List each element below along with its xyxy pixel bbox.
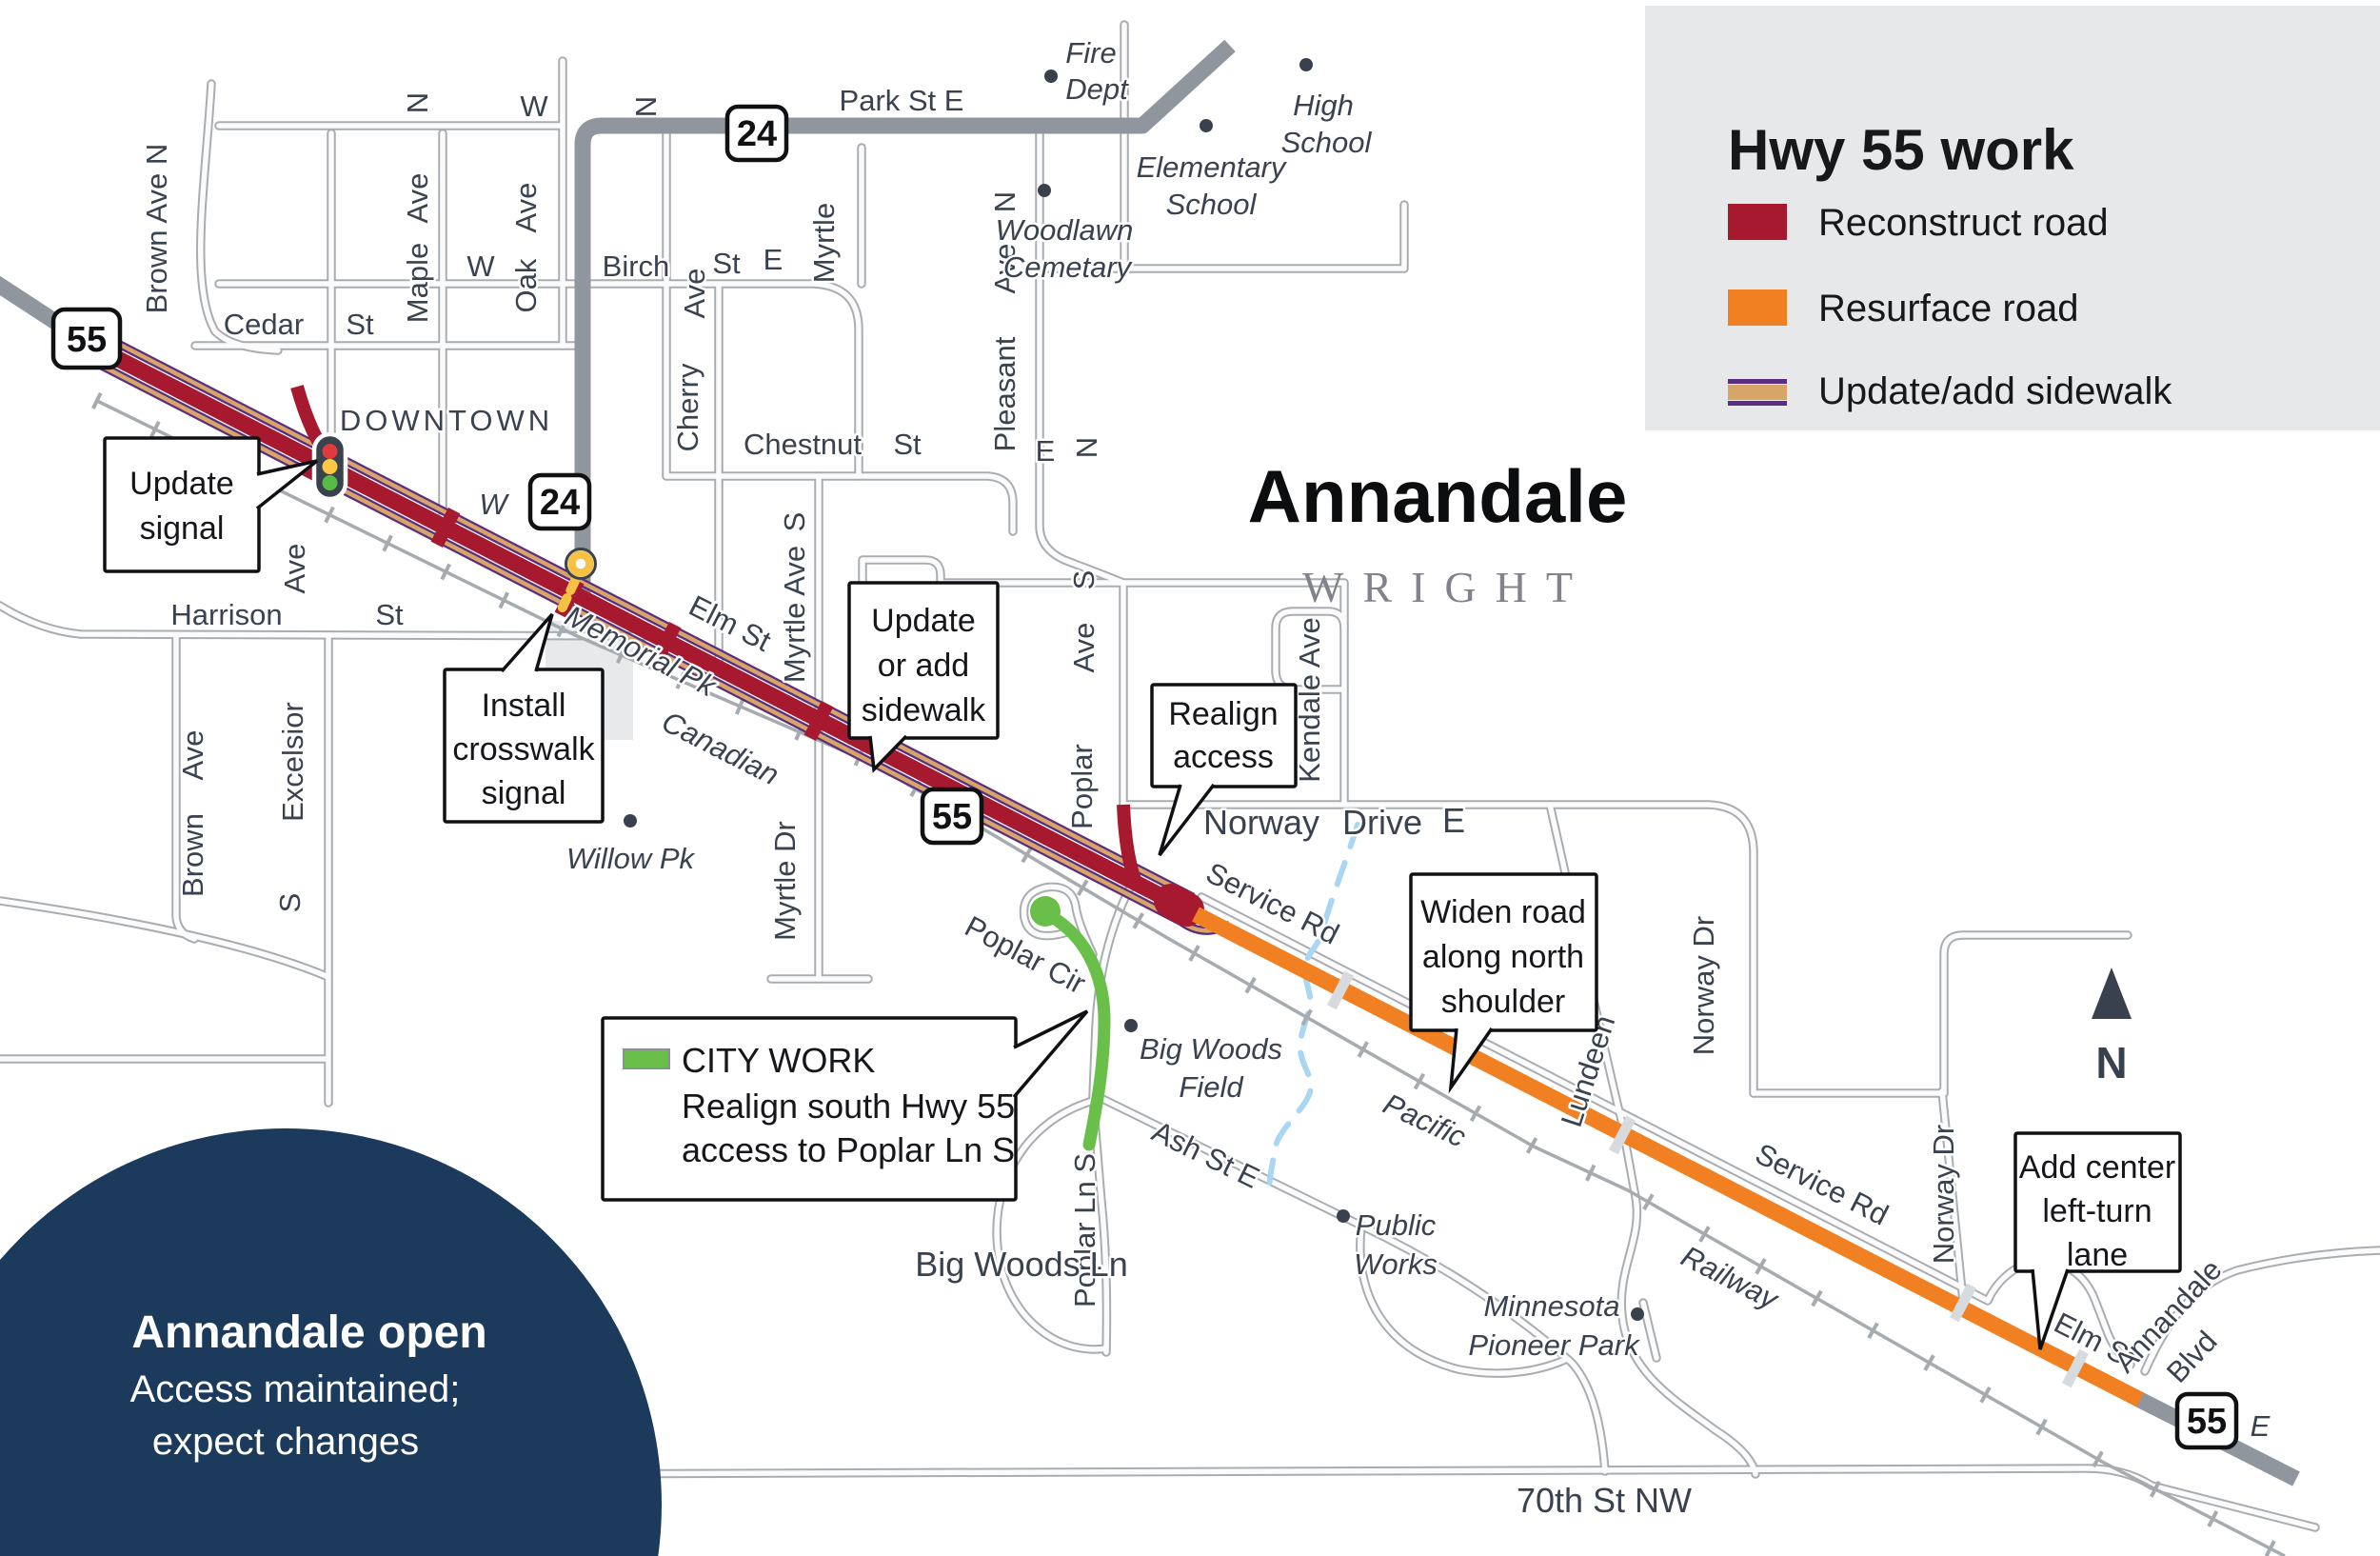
shield-24-mid-num: 24 xyxy=(540,483,580,523)
shield-55-nw-num: 55 xyxy=(67,320,107,360)
notice-title: Annandale open xyxy=(131,1307,486,1358)
mn-pioneer-dot xyxy=(1631,1307,1644,1321)
street-label-poplar: Poplar xyxy=(1065,744,1099,829)
poi-elementary: Elementary xyxy=(1137,150,1288,184)
fire-dept-dot xyxy=(1044,70,1058,83)
street-label-cherry-ave: Ave xyxy=(678,269,711,319)
callout-city-work-pointer xyxy=(1014,1011,1087,1097)
callout-sidewalk-line3: sidewalk xyxy=(862,692,986,728)
street-label-poplar-ln-s: Poplar Ln S xyxy=(1068,1153,1101,1307)
elementary-school-dot xyxy=(1200,119,1213,132)
legend: Hwy 55 work Reconstruct road Resurface r… xyxy=(1645,6,2380,430)
signal-yellow-light xyxy=(323,459,338,474)
shield-55-se: 55 xyxy=(2177,1394,2236,1447)
street-label-chestnut-e: E xyxy=(1036,434,1056,468)
poi-minnesota: Minnesota xyxy=(1483,1289,1619,1323)
street-label-pleasant: Pleasant xyxy=(988,336,1021,451)
hwy-24-road xyxy=(583,46,1230,598)
street-label-70th-st-nw: 70th St NW xyxy=(1517,1481,1692,1520)
shield-55-mid-num: 55 xyxy=(932,797,972,837)
notice-circle: Annandale open Access maintained; expect… xyxy=(0,1128,662,1556)
callout-left-turn-line1: Add center xyxy=(2019,1149,2175,1186)
callout-update-signal-pointer xyxy=(257,461,317,509)
street-label-excelsior-ave: Ave xyxy=(278,544,311,594)
callout-crosswalk-pointer xyxy=(502,614,552,671)
street-label-ash-st-e: Ash St E xyxy=(1147,1114,1265,1194)
shield-55-mid: 55 xyxy=(922,789,982,843)
callout-update-signal-line2: signal xyxy=(140,510,225,547)
callout-sidewalk-line2: or add xyxy=(878,648,969,684)
street-label-myrtle: Myrtle xyxy=(807,203,841,283)
street-label-kendale-ave: Kendale Ave xyxy=(1293,617,1326,783)
big-woods-field-dot xyxy=(1124,1019,1138,1032)
street-label-excelsior: Excelsior xyxy=(276,702,309,822)
street-label-drive: Drive xyxy=(1342,803,1422,842)
legend-sidewalk-tan xyxy=(1728,385,1787,400)
street-label-excelsior-s: S xyxy=(273,893,307,913)
notice-line1: Access maintained; xyxy=(130,1368,461,1410)
poi-high: High xyxy=(1293,89,1354,122)
street-label-myrtle-ave-s-suffix: S xyxy=(778,512,811,532)
callout-widen-line2: along north xyxy=(1422,939,1584,975)
high-school-dot xyxy=(1299,58,1313,71)
street-label-birch: Birch xyxy=(603,249,670,283)
shield-55-se-num: 55 xyxy=(2187,1402,2227,1442)
signal-red-light xyxy=(323,444,338,459)
street-label-n-suffix: N xyxy=(629,96,663,117)
poi-willow-pk: Willow Pk xyxy=(566,842,696,875)
street-label-brown-s: Brown xyxy=(176,813,209,897)
street-label-maple-n: N xyxy=(401,92,434,113)
street-label-pleasant-n: N xyxy=(988,191,1021,212)
callout-realign-line1: Realign xyxy=(1168,696,1278,732)
street-label-oak: Oak xyxy=(509,258,543,312)
legend-swatch-reconstruct xyxy=(1728,204,1787,240)
poi-cemetary: Cemetary xyxy=(1003,250,1134,284)
callout-left-turn-line3: lane xyxy=(2067,1237,2128,1273)
public-works-dot xyxy=(1337,1209,1350,1223)
callout-city-work: CITY WORK Realign south Hwy 55 access to… xyxy=(603,1011,1087,1200)
callout-crosswalk-line3: signal xyxy=(482,775,566,811)
poi-pioneer-park: Pioneer Park xyxy=(1468,1328,1640,1362)
legend-label-resurface: Resurface road xyxy=(1818,288,2078,329)
street-label-birch-w: W xyxy=(466,249,495,283)
legend-sidewalk-purple-bottom xyxy=(1728,401,1787,406)
street-label-chestnut: Chestnut xyxy=(744,428,862,461)
city-work-title: CITY WORK xyxy=(682,1041,875,1080)
street-label-birch-e: E xyxy=(764,243,783,276)
callout-sidewalk-line1: Update xyxy=(871,603,976,639)
willow-pk-dot xyxy=(624,814,637,828)
legend-swatch-sidewalk xyxy=(1728,379,1787,406)
shield-24-top: 24 xyxy=(727,107,786,160)
street-label-hwy55-e: E xyxy=(2251,1409,2271,1443)
poi-field: Field xyxy=(1179,1070,1244,1104)
poi-public: Public xyxy=(1356,1208,1437,1242)
woodlawn-dot xyxy=(1038,184,1051,197)
north-label: N xyxy=(2095,1038,2127,1087)
red-realign-spur xyxy=(1123,805,1135,880)
street-label-park-st-e: Park St E xyxy=(840,84,964,117)
street-label-cherry: Cherry xyxy=(671,363,704,452)
county-label: WRIGHT xyxy=(1302,563,1592,611)
street-label-birch-st: St xyxy=(712,247,741,280)
shield-24-top-num: 24 xyxy=(737,114,777,154)
poi-high-school: School xyxy=(1281,126,1373,159)
street-label-myrtle-dr: Myrtle Dr xyxy=(768,821,802,941)
poi-dept: Dept xyxy=(1065,72,1129,106)
road-mn-park xyxy=(1621,1192,1755,1474)
street-label-myrtle-ave: Myrtle Ave xyxy=(778,546,811,683)
street-label-brown-s-ave: Ave xyxy=(176,730,209,781)
legend-title: Hwy 55 work xyxy=(1728,118,2074,182)
legend-label-sidewalk: Update/add sidewalk xyxy=(1818,370,2172,412)
legend-swatch-resurface xyxy=(1728,289,1787,326)
street-label-poplar-ave: Ave xyxy=(1067,623,1101,673)
street-label-harrison-st: St xyxy=(375,598,404,631)
city-work-line1: Realign south Hwy 55 xyxy=(682,1087,1015,1126)
callout-widen-line1: Widen road xyxy=(1420,894,1586,930)
creek xyxy=(1268,825,1358,1200)
street-label-norway-e: E xyxy=(1442,801,1465,840)
road-ne-l xyxy=(1121,205,1404,269)
city-label: Annandale xyxy=(1248,454,1628,538)
road-pleasant-ave xyxy=(1040,133,1123,583)
traffic-signal-icon xyxy=(314,434,346,499)
poi-works: Works xyxy=(1354,1247,1438,1281)
street-label-maple: Maple xyxy=(401,243,434,323)
street-label-cedar-st: St xyxy=(346,308,374,341)
street-label-big-woods-ln: Big Woods Ln xyxy=(915,1245,1127,1284)
poi-fire: Fire xyxy=(1065,36,1116,70)
signal-green-light xyxy=(323,475,338,490)
street-label-norway-dr-1: Norway Dr xyxy=(1687,916,1720,1055)
street-label-brown-ave-n: Brown Ave N xyxy=(140,144,173,314)
city-work-swatch xyxy=(624,1049,669,1068)
street-label-maple-ave: Ave xyxy=(401,173,434,224)
street-label-park-w: W xyxy=(520,90,548,123)
street-label-harrison: Harrison xyxy=(170,598,282,631)
downtown-label: DOWNTOWN xyxy=(340,404,553,437)
callout-update-signal-line1: Update xyxy=(129,466,234,502)
shield-24-mid: 24 xyxy=(530,475,589,529)
callout-crosswalk-line1: Install xyxy=(482,688,566,724)
annandale-hwy55-map: Brown Ave N N Ave Maple W Ave Oak N Park… xyxy=(0,0,2380,1556)
road-70th-st xyxy=(529,1468,2315,1527)
street-label-elm-st-1: Elm St xyxy=(684,588,777,658)
poi-elementary-school: School xyxy=(1166,188,1258,221)
red-access-blob xyxy=(1171,901,1187,909)
notice-line2: expect changes xyxy=(152,1421,419,1463)
compass: N xyxy=(2092,968,2132,1087)
shield-55-nw: 55 xyxy=(53,309,120,368)
street-label-chestnut-n: N xyxy=(1070,437,1103,458)
poi-woodlawn: Woodlawn xyxy=(996,213,1134,247)
street-label-chestnut-st: St xyxy=(893,428,922,461)
poi-big-woods: Big Woods xyxy=(1140,1032,1282,1066)
callout-left-turn-line2: left-turn xyxy=(2042,1193,2152,1229)
street-label-pacific: Pacific xyxy=(1378,1087,1472,1154)
city-work-line2: access to Poplar Ln S xyxy=(682,1130,1015,1169)
street-label-oak-ave: Ave xyxy=(509,183,543,233)
callout-update-signal-box xyxy=(105,438,259,571)
callout-sidewalk: Update or add sidewalk xyxy=(849,583,998,769)
north-arrow-icon xyxy=(2092,968,2132,1019)
street-label-norway-dr-2: Norway Dr xyxy=(1927,1125,1960,1264)
legend-sidewalk-purple-top xyxy=(1728,379,1787,384)
callout-widen-line3: shoulder xyxy=(1441,984,1565,1020)
callout-realign-line2: access xyxy=(1173,739,1274,775)
street-label-poplar-s: S xyxy=(1067,570,1101,590)
street-label-hwy24-w: W xyxy=(479,488,509,521)
callout-crosswalk-line2: crosswalk xyxy=(452,731,595,768)
street-label-cedar: Cedar xyxy=(224,308,304,341)
legend-label-reconstruct: Reconstruct road xyxy=(1818,202,2109,244)
street-label-norway: Norway xyxy=(1203,803,1319,842)
